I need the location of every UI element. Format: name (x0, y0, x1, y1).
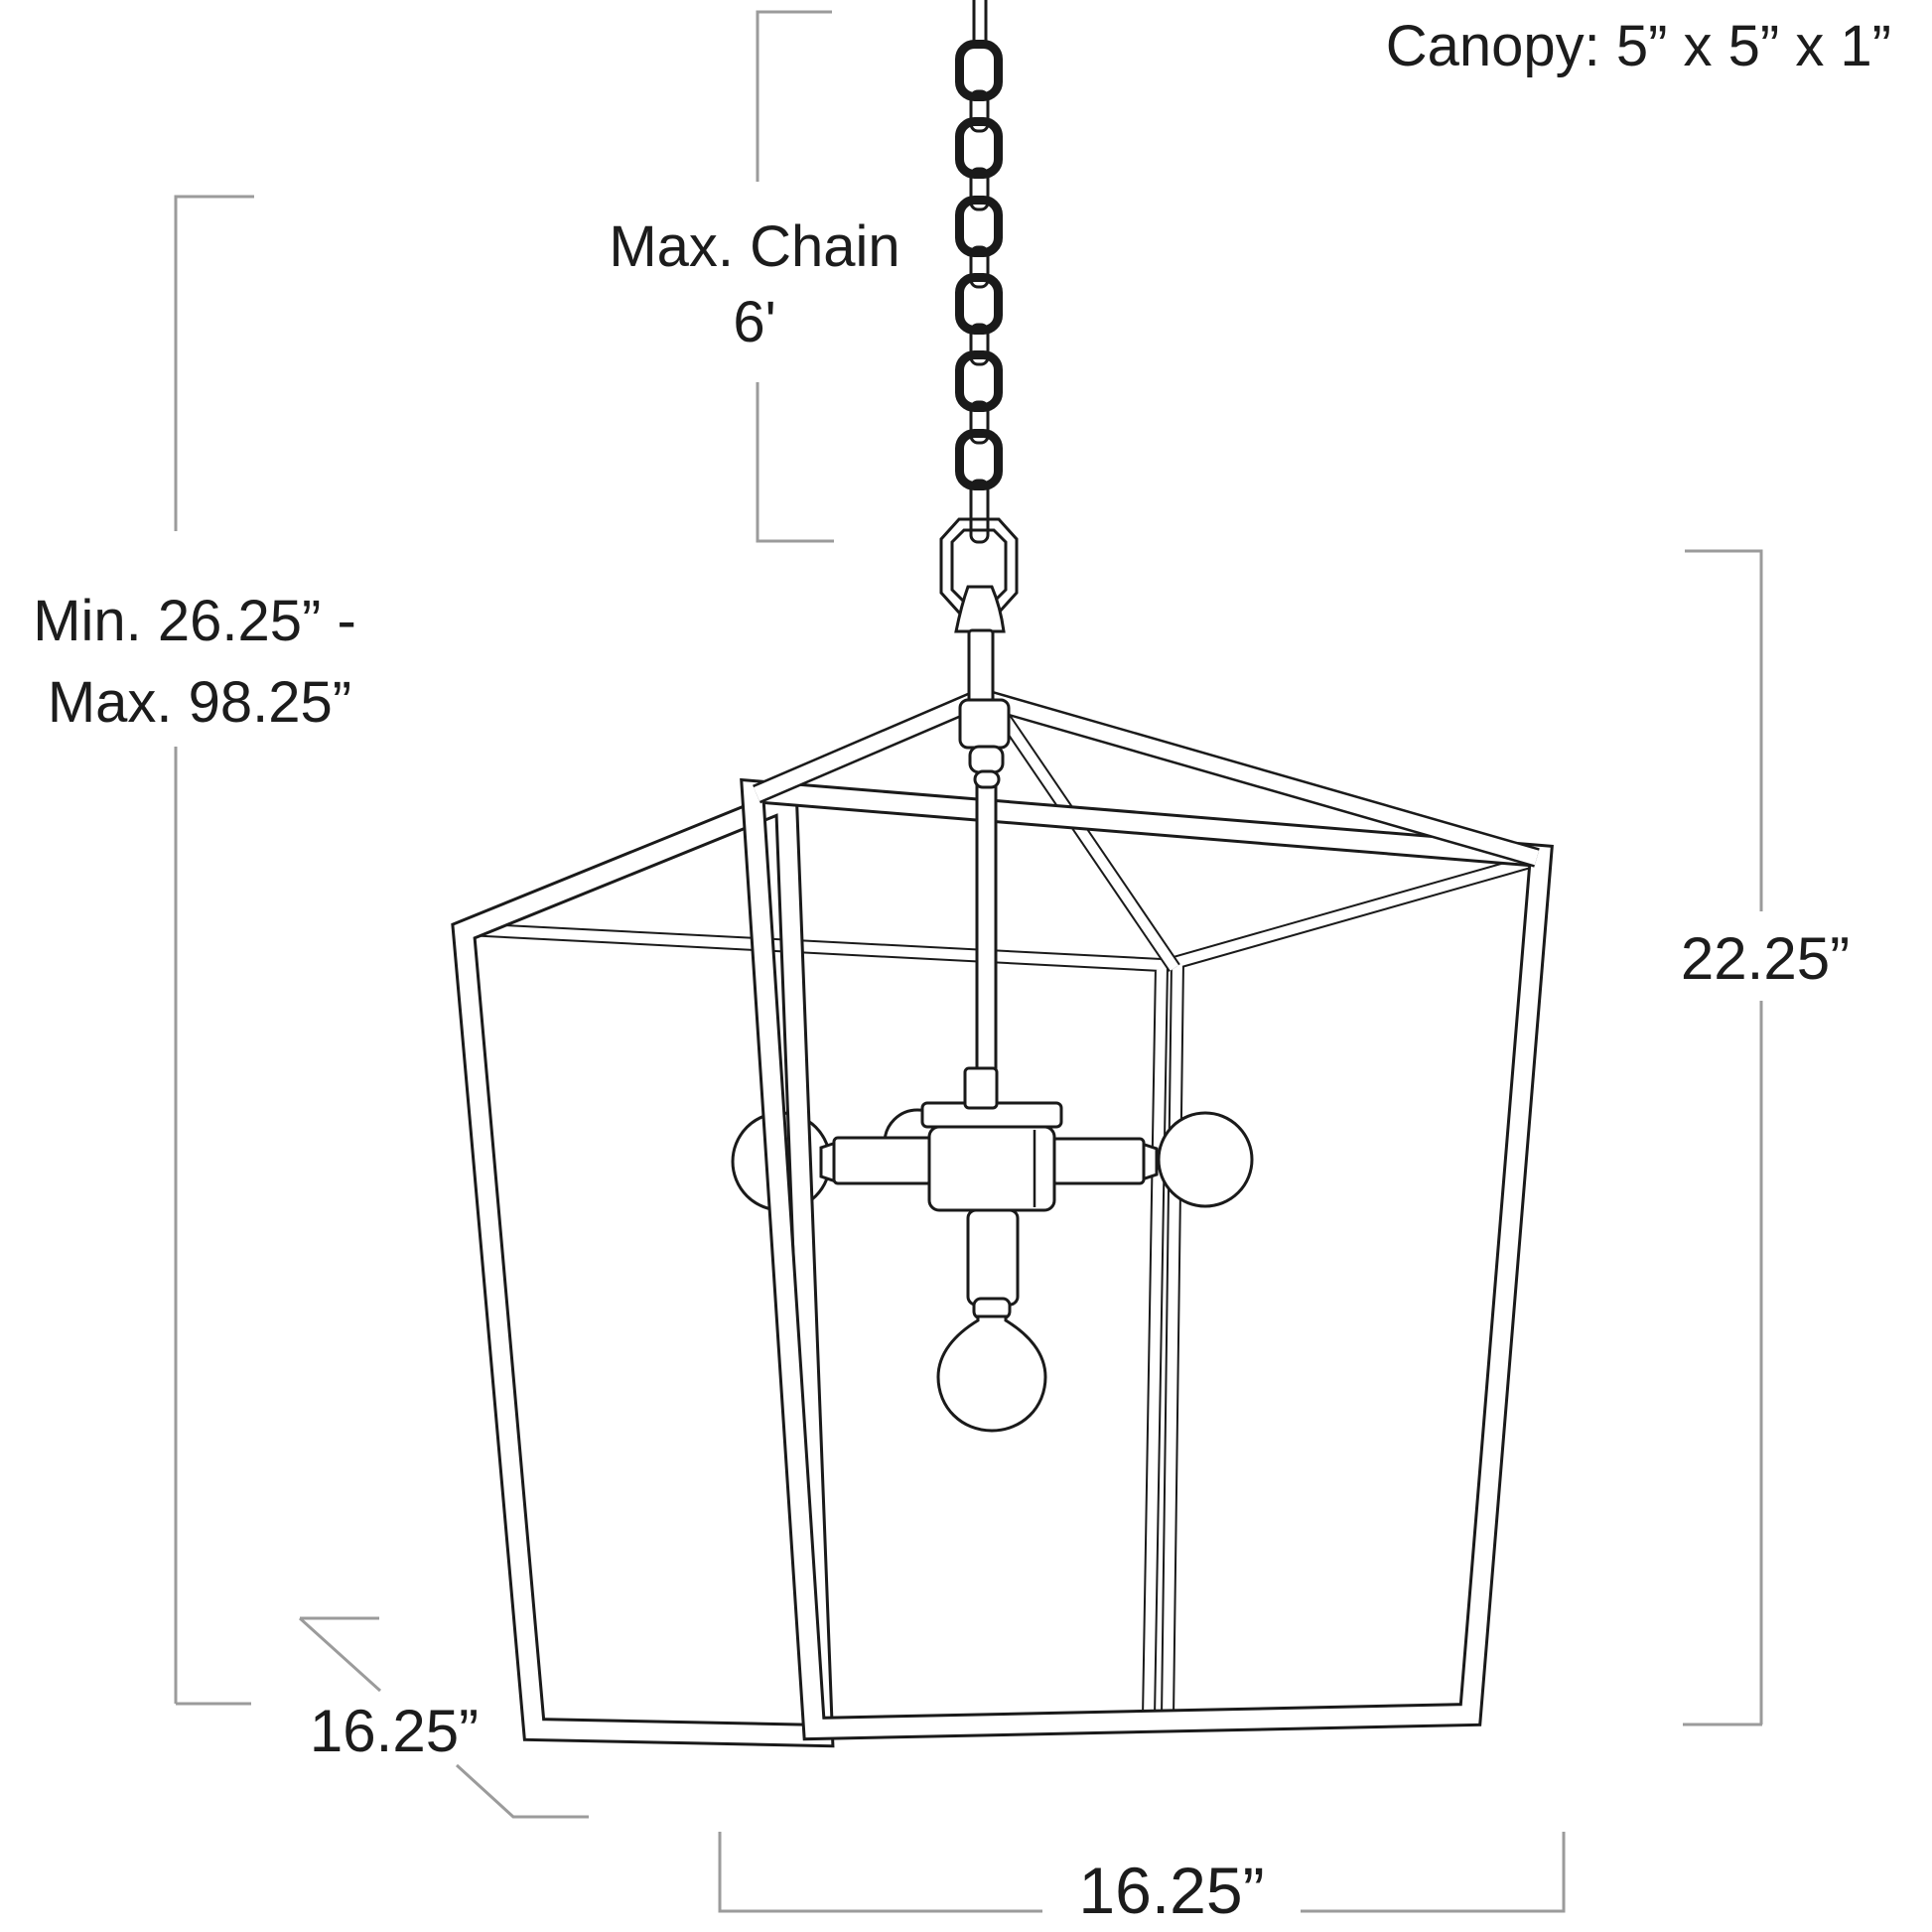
canopy-dimension-label: Canopy: 5” x 5” x 1” (1386, 14, 1891, 78)
apex-knob (975, 771, 999, 787)
cage-height-bracket: 22.25” (1681, 551, 1850, 1725)
cage-width-bracket: 16.25” (720, 1832, 1564, 1927)
cage-depth-label: 16.25” (310, 1698, 479, 1764)
overall-height-label-line1: Min. 26.25” - (33, 589, 356, 653)
finial-cone (956, 587, 1004, 631)
apex-collar (970, 747, 1003, 772)
cage-depth-bracket: 16.25” (300, 1618, 589, 1817)
canopy-label-group: Canopy: 5” x 5” x 1” (1386, 14, 1891, 78)
max-chain-label-line2: 6' (733, 290, 775, 354)
overall-height-label-line2: Max. 98.25” (48, 670, 351, 735)
cage-height-label: 22.25” (1681, 925, 1850, 992)
bottom-bulb (938, 1316, 1045, 1431)
diagram-page: Max. Chain 6' Min. 26.25” - Max. 98.25” … (0, 0, 1932, 1932)
max-chain-label-line1: Max. Chain (609, 214, 899, 279)
chain-assembly (941, 0, 1017, 787)
left-socket-arm (834, 1138, 931, 1183)
down-socket-tube (968, 1210, 1018, 1305)
chain-connector-links (971, 91, 988, 542)
finial-stem (969, 630, 993, 704)
cage-height-bracket-line (1683, 551, 1762, 1725)
right-socket-arm (1052, 1139, 1144, 1183)
max-chain-bracket: Max. Chain 6' (609, 12, 899, 541)
dimension-diagram-canvas: Max. Chain 6' Min. 26.25” - Max. 98.25” … (0, 0, 1932, 1932)
overall-height-bracket-line (176, 197, 254, 1704)
overall-height-bracket: Min. 26.25” - Max. 98.25” (33, 197, 356, 1704)
cage-width-label: 16.25” (1078, 1854, 1264, 1927)
stem-coupler (965, 1068, 997, 1108)
ceiling-stem-rod (974, 0, 986, 46)
right-bulb (1159, 1113, 1252, 1206)
center-stem (965, 782, 997, 1108)
apex-block (960, 700, 1009, 748)
stem-rod (977, 782, 996, 1072)
